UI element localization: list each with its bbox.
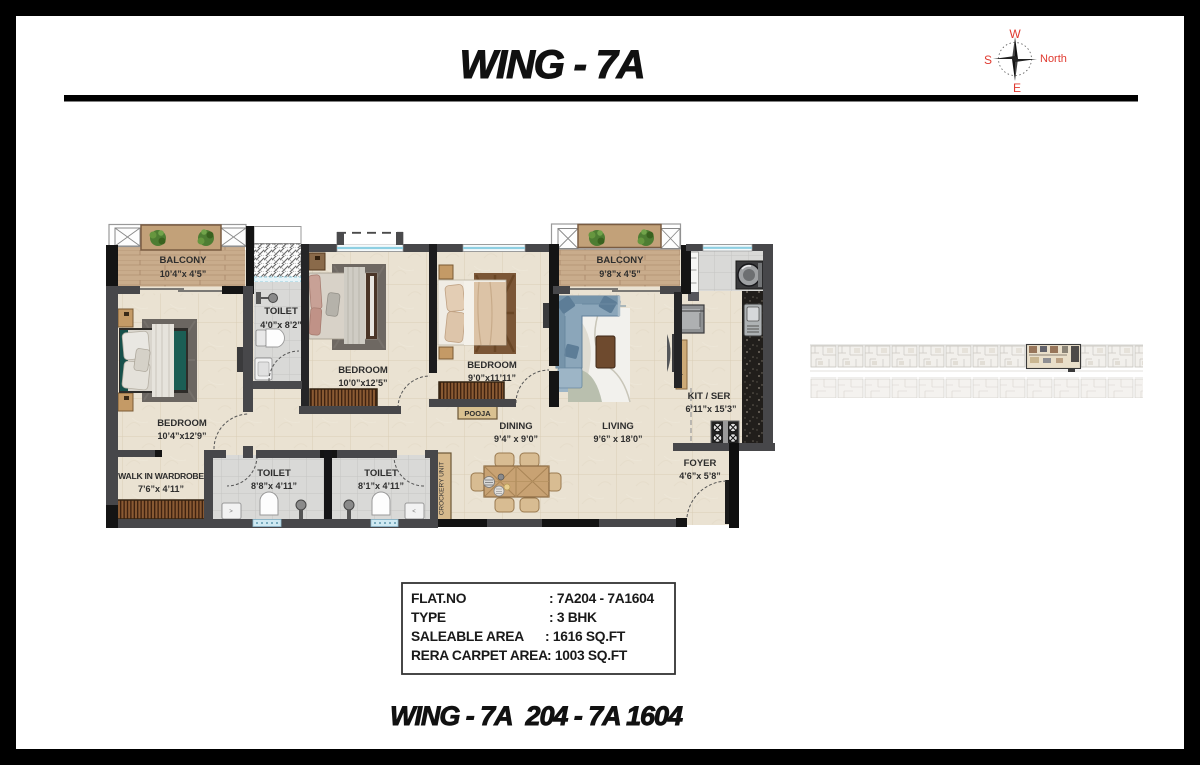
svg-text:9’4” x 9’0”: 9’4” x 9’0” (494, 434, 538, 444)
svg-text:: 7A204 - 7A1604: : 7A204 - 7A1604 (549, 591, 655, 606)
svg-text:4’6”x 5’8”: 4’6”x 5’8” (679, 471, 721, 481)
svg-text:FLAT.NO: FLAT.NO (411, 591, 467, 606)
svg-text:LIVING: LIVING (602, 421, 634, 432)
svg-text:BEDROOM: BEDROOM (467, 360, 517, 371)
svg-text:8’1”x 4’11”: 8’1”x 4’11” (358, 481, 404, 491)
svg-text:TOILET: TOILET (257, 468, 291, 479)
svg-text:SALEABLE AREA: SALEABLE AREA (411, 629, 524, 644)
svg-text:RERA CARPET AREA: RERA CARPET AREA (411, 648, 548, 663)
svg-text:WALK IN WARDROBE: WALK IN WARDROBE (118, 471, 204, 481)
svg-text:: 1003 SQ.FT: : 1003 SQ.FT (547, 648, 628, 663)
svg-text:BEDROOM: BEDROOM (157, 418, 207, 429)
svg-text:North: North (1040, 53, 1067, 65)
svg-text:POOJA: POOJA (464, 409, 491, 418)
svg-text:TOILET: TOILET (364, 468, 398, 479)
svg-text:8’8”x 4’11”: 8’8”x 4’11” (251, 481, 297, 491)
svg-text:10’0”x12’5”: 10’0”x12’5” (338, 378, 387, 388)
svg-text:6’11”x 15’3”: 6’11”x 15’3” (685, 404, 736, 414)
svg-text:BALCONY: BALCONY (160, 255, 208, 266)
svg-text:KIT / SER: KIT / SER (688, 391, 731, 402)
svg-text:WING - 7A: WING - 7A (460, 43, 645, 87)
svg-text:S: S (984, 53, 992, 67)
svg-text:DINING: DINING (499, 421, 532, 432)
svg-text:WING - 7A 204 - 7A 1604: WING - 7A 204 - 7A 1604 (390, 701, 683, 731)
svg-text:BALCONY: BALCONY (597, 255, 645, 266)
svg-text:4’0”x 8’2”: 4’0”x 8’2” (260, 320, 302, 330)
svg-text:10’4”x12’9”: 10’4”x12’9” (157, 431, 206, 441)
svg-text:<: < (412, 509, 416, 515)
svg-text:TYPE: TYPE (411, 610, 446, 625)
svg-text:W: W (1009, 27, 1021, 41)
svg-text:9’8”x 4’5”: 9’8”x 4’5” (599, 269, 641, 279)
svg-text:: 1616 SQ.FT: : 1616 SQ.FT (545, 629, 626, 644)
svg-text:10’4”x 4’5”: 10’4”x 4’5” (160, 269, 207, 279)
svg-text:CROCKERY UNIT: CROCKERY UNIT (439, 462, 446, 516)
svg-text:: 3 BHK: : 3 BHK (549, 610, 597, 625)
svg-text:E: E (1013, 81, 1021, 95)
svg-text:7’6”x 4’11”: 7’6”x 4’11” (138, 484, 184, 494)
svg-text:>: > (229, 509, 233, 515)
svg-text:FOYER: FOYER (684, 458, 717, 469)
svg-text:BEDROOM: BEDROOM (338, 365, 388, 376)
svg-text:9’6” x 18’0”: 9’6” x 18’0” (593, 434, 642, 444)
svg-text:TOILET: TOILET (264, 306, 298, 317)
